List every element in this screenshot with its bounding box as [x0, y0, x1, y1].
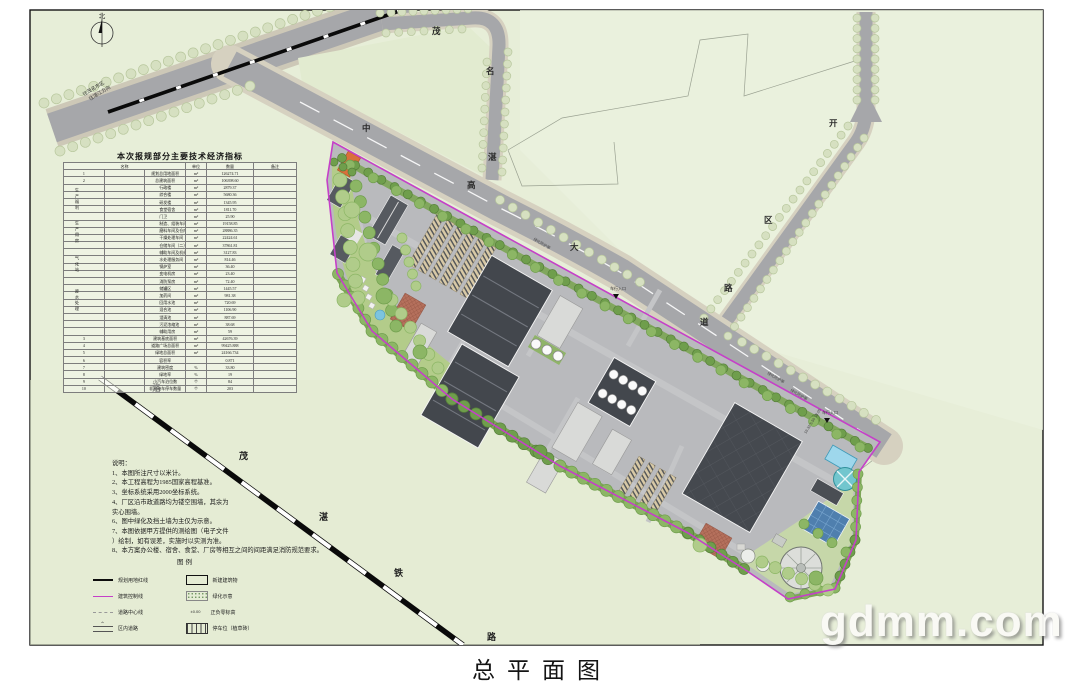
row-number: 1	[64, 170, 105, 177]
row-name: 建筑密度	[145, 364, 186, 371]
group-label: 气化站	[74, 256, 80, 273]
legend-item: ±0.00 正负零标高	[186, 604, 279, 620]
table-row: 变电机房 m² 23.40	[64, 270, 297, 277]
row-group-cell	[104, 234, 145, 241]
row-group-cell	[104, 292, 145, 299]
note-line: 6、图中绿化及挡土墙为主仅为示意。	[112, 517, 342, 527]
row-unit: m²	[186, 206, 207, 213]
row-name: 锅炉室	[145, 263, 186, 270]
row-group-cell	[104, 313, 145, 320]
row-name: 制造、组装车间、机械储存总库房	[145, 220, 186, 227]
row-remark	[254, 198, 297, 205]
table-row: 储罐区 m² 1445.57	[64, 285, 297, 292]
row-number	[64, 278, 105, 285]
row-unit: m²	[186, 306, 207, 313]
table-row: 辅助用房 m² 59	[64, 328, 297, 335]
row-group-cell	[104, 242, 145, 249]
row-number	[64, 220, 105, 227]
row-name: 回用水池	[145, 299, 186, 306]
table-row: 3 建筑基底面积 m² 42676.39	[64, 335, 297, 342]
row-unit: m²	[186, 198, 207, 205]
row-number	[64, 213, 105, 220]
row-unit: m²	[186, 278, 207, 285]
vehicle-entrance-label: 车行入口	[610, 285, 626, 291]
row-group-cell	[104, 299, 145, 306]
row-quantity: 2879.37	[207, 184, 254, 191]
row-group-cell	[104, 249, 145, 256]
row-number	[64, 328, 105, 335]
row-remark	[254, 321, 297, 328]
table-row: 1 规划总用地面积 m² 126274.71	[64, 170, 297, 177]
group-label: 废水处理	[74, 289, 80, 312]
row-unit: m²	[186, 170, 207, 177]
row-remark	[254, 349, 297, 356]
legend-item: 道路中心线	[93, 604, 186, 620]
col-header-remark: 备注	[254, 163, 297, 170]
row-remark	[254, 184, 297, 191]
table-row: 2 总建筑面积 m² 106398.60	[64, 177, 297, 184]
row-unit: m²	[186, 234, 207, 241]
row-group-cell	[104, 191, 145, 198]
row-name: 干燥处理车间	[145, 234, 186, 241]
row-name: 综合楼	[145, 191, 186, 198]
row-name: 总建筑面积	[145, 177, 186, 184]
row-name: 辅助车间及机修用房	[145, 249, 186, 256]
row-group-cell	[104, 198, 145, 205]
legend-item: 停车位（植草砖）	[186, 620, 279, 636]
row-remark	[254, 270, 297, 277]
row-name: 规划总用地面积	[145, 170, 186, 177]
notes-block: 说明：1、本图所注尺寸以米计。2、本工程高程为1985国家高程基准。3、坐标系统…	[112, 459, 342, 556]
row-group-cell	[104, 328, 145, 335]
row-name: 变电机房	[145, 270, 186, 277]
row-quantity: 23.40	[207, 270, 254, 277]
row-unit: m²	[186, 213, 207, 220]
row-unit: m²	[186, 328, 207, 335]
row-unit: %	[186, 364, 207, 371]
row-remark	[254, 385, 297, 392]
table-row: 门卫 m² 25.90	[64, 213, 297, 220]
row-number	[64, 184, 105, 191]
legend-label: 正负零标高	[211, 609, 236, 616]
table-row: 研发楼 m² 1345.95	[64, 198, 297, 205]
row-name: 食堂宿舍	[145, 206, 186, 213]
row-unit: m²	[186, 270, 207, 277]
row-group-cell	[104, 342, 145, 349]
row-remark	[254, 177, 297, 184]
note-line: 2、本工程高程为1985国家高程基准。	[112, 478, 342, 488]
table-row: 制造、组装车间、机械储存总库房 m² 19158.85	[64, 220, 297, 227]
row-remark	[254, 306, 297, 313]
row-quantity: 72.40	[207, 278, 254, 285]
row-unit	[186, 357, 207, 364]
road-char: 区	[764, 215, 773, 225]
row-remark	[254, 313, 297, 320]
watermark: gdmm.com	[820, 597, 1063, 647]
table-row: 10 非机动车停车数量 个 203	[64, 385, 297, 392]
row-unit: m²	[186, 191, 207, 198]
row-name: 磨料车间及仓库B（一）	[145, 227, 186, 234]
row-group-cell	[104, 349, 145, 356]
row-number	[64, 306, 105, 313]
row-remark	[254, 342, 297, 349]
row-quantity: 0.871	[207, 357, 254, 364]
row-number	[64, 313, 105, 320]
row-remark	[254, 299, 297, 306]
sheet-title: 总平面图	[0, 651, 1084, 685]
redline-icon	[93, 575, 113, 585]
road-char: 路	[724, 283, 733, 293]
table-row: 9 小汽车泊位数 个 84	[64, 378, 297, 385]
row-quantity: 33.80	[207, 364, 254, 371]
row-name: 辅助用房	[145, 328, 186, 335]
garden-pond	[375, 310, 385, 320]
legend-label: 道路中心线	[118, 609, 143, 616]
row-group-cell	[104, 170, 145, 177]
row-group-cell	[104, 321, 145, 328]
row-quantity: 84	[207, 378, 254, 385]
row-name: 建筑基底面积	[145, 335, 186, 342]
legend-item: 区内道路	[93, 620, 186, 636]
row-number: 5	[64, 349, 105, 356]
row-unit: m²	[186, 184, 207, 191]
road-char: 开	[829, 118, 838, 128]
row-name: 澄清池	[145, 313, 186, 320]
row-group-cell	[104, 227, 145, 234]
row-name: 门卫	[145, 213, 186, 220]
row-remark	[254, 335, 297, 342]
road-char: 大	[570, 242, 579, 252]
row-number	[64, 191, 105, 198]
row-quantity: 106398.60	[207, 177, 254, 184]
legend-item: 规划用地红线	[93, 572, 186, 588]
row-remark	[254, 285, 297, 292]
row-unit: m²	[186, 285, 207, 292]
table-row: 污泥浓缩池 m² 38.68	[64, 321, 297, 328]
row-quantity: 3127.83	[207, 249, 254, 256]
row-number	[64, 292, 105, 299]
row-group-cell	[104, 371, 145, 378]
table-row: 行政楼 m² 2879.37	[64, 184, 297, 191]
row-group-cell	[104, 206, 145, 213]
row-number	[64, 256, 105, 263]
row-remark	[254, 191, 297, 198]
legend-item: 建筑控制线	[93, 588, 186, 604]
row-quantity: 1106.90	[207, 306, 254, 313]
row-quantity: 28886.35	[207, 227, 254, 234]
table-row: 综合楼 m² 5680.36	[64, 191, 297, 198]
row-unit: m²	[186, 220, 207, 227]
row-unit: m²	[186, 292, 207, 299]
table-row: 5 绿地总面积 m² 24166.734	[64, 349, 297, 356]
row-quantity: 5680.36	[207, 191, 254, 198]
legend-label: 新建建筑物	[213, 577, 238, 584]
table-row: 7 建筑密度 % 33.80	[64, 364, 297, 371]
row-group-cell	[104, 184, 145, 191]
row-number	[64, 206, 105, 213]
row-unit: m²	[186, 342, 207, 349]
row-number	[64, 249, 105, 256]
row-remark	[254, 213, 297, 220]
row-number	[64, 321, 105, 328]
row-group-cell	[104, 263, 145, 270]
table-row: 回用水池 m² 720.69	[64, 299, 297, 306]
railway-char: 铁	[394, 567, 403, 578]
north-label: 北	[99, 12, 106, 20]
row-unit: m²	[186, 177, 207, 184]
row-remark	[254, 170, 297, 177]
row-group-cell	[104, 385, 145, 392]
row-number	[64, 234, 105, 241]
digester-tank	[741, 549, 755, 563]
row-group-cell	[104, 220, 145, 227]
level-mark-icon: ±0.00	[186, 607, 206, 617]
centerline-icon	[93, 607, 113, 617]
row-quantity: 203	[207, 385, 254, 392]
note-line: 3、坐标系统采用2000坐标系统。	[112, 488, 342, 498]
greening-icon	[186, 591, 208, 601]
row-group-cell	[104, 306, 145, 313]
row-number	[64, 242, 105, 249]
road-char: 茂	[431, 26, 441, 36]
row-unit: m²	[186, 256, 207, 263]
row-name: 非机动车停车数量	[145, 385, 186, 392]
row-unit: m²	[186, 335, 207, 342]
row-number: 9	[64, 378, 105, 385]
table-row: 消防泵房 m² 72.40	[64, 278, 297, 285]
row-number: 7	[64, 364, 105, 371]
legend-label: 区内道路	[118, 625, 138, 632]
row-quantity: 1445.57	[207, 285, 254, 292]
col-header-qty: 数量	[207, 163, 254, 170]
row-group-cell	[104, 378, 145, 385]
table-row: 磨料车间及仓库B（一） m² 28886.35	[64, 227, 297, 234]
row-name: 绿地总面积	[145, 349, 186, 356]
legend-label: 绿化示意	[213, 593, 233, 600]
row-unit: m²	[186, 313, 207, 320]
note-line: 1、本图所注尺寸以米计。	[112, 469, 342, 479]
row-remark	[254, 364, 297, 371]
note-line: 说明：	[112, 459, 342, 469]
group-label: 生产福利	[74, 188, 80, 211]
row-unit: 个	[186, 378, 207, 385]
row-number	[64, 285, 105, 292]
row-number	[64, 263, 105, 270]
row-unit: m²	[186, 321, 207, 328]
row-unit: m²	[186, 249, 207, 256]
row-unit: 个	[186, 385, 207, 392]
row-quantity: 37861.81	[207, 242, 254, 249]
row-name: 加药间	[145, 292, 186, 299]
row-group-cell	[104, 357, 145, 364]
table-row: 混合池 m² 1106.90	[64, 306, 297, 313]
table-row: 加药间 m² 981.38	[64, 292, 297, 299]
table-row: 水处理服务间 m² 814.46	[64, 256, 297, 263]
row-remark	[254, 328, 297, 335]
table-row: 8 绿地率 % 19	[64, 371, 297, 378]
table-row: 食堂宿舍 m² 1811.70	[64, 206, 297, 213]
row-number	[64, 227, 105, 234]
row-number	[64, 270, 105, 277]
new-building-icon	[186, 575, 208, 585]
note-line: 实心围墙。	[112, 508, 342, 518]
table-row: 澄清池 m² 887.69	[64, 313, 297, 320]
row-quantity: 59	[207, 328, 254, 335]
row-name: 仓储车间（二）	[145, 242, 186, 249]
row-remark	[254, 234, 297, 241]
legend-item: 新建建筑物	[186, 572, 279, 588]
row-remark	[254, 263, 297, 270]
row-group-cell	[104, 213, 145, 220]
note-line: 8、本方案办公楼、宿舍、食堂、厂房等相互之间的间距满足消防规范要求。	[112, 546, 342, 556]
row-quantity: 814.46	[207, 256, 254, 263]
road-char: 高	[467, 180, 476, 190]
row-remark	[254, 357, 297, 364]
table-row: 辅助车间及机修用房 m² 3127.83	[64, 249, 297, 256]
inner-road-icon	[93, 623, 113, 633]
table-header-row: 名称 单位 数量 备注	[64, 163, 297, 170]
row-quantity: 24166.734	[207, 349, 254, 356]
row-name: 绿地率	[145, 371, 186, 378]
table-row: 干燥处理车间 m² 22424.61	[64, 234, 297, 241]
row-number: 10	[64, 385, 105, 392]
row-number	[64, 299, 105, 306]
row-unit: m²	[186, 263, 207, 270]
indicator-table: 本次报规部分主要技术经济指标 名称 单位 数量 备注 1 规划总用地面积 m² …	[63, 152, 297, 393]
col-header-unit: 单位	[186, 163, 207, 170]
magenta-line-icon	[93, 591, 113, 601]
row-name: 小汽车泊位数	[145, 378, 186, 385]
legend-label: 规划用地红线	[118, 577, 148, 584]
row-quantity: 36.40	[207, 263, 254, 270]
table-row: 4 道路广场总面积 m² 99425.888	[64, 342, 297, 349]
col-header-name: 名称	[64, 163, 186, 170]
table-title: 本次报规部分主要技术经济指标	[63, 152, 297, 162]
row-name: 容积率	[145, 357, 186, 364]
note-line: 4、厂区沿市政道路均为镂空围墙，其余为	[112, 498, 342, 508]
row-group-cell	[104, 270, 145, 277]
road-char: 中	[362, 123, 371, 133]
row-remark	[254, 292, 297, 299]
row-group-cell	[104, 335, 145, 342]
table-row: 锅炉室 m² 36.40	[64, 263, 297, 270]
row-name: 研发楼	[145, 198, 186, 205]
row-number: 8	[64, 371, 105, 378]
note-line: ）绘制，如有误差，实施时以实测为准。	[112, 537, 342, 547]
row-quantity: 99425.888	[207, 342, 254, 349]
row-remark	[254, 206, 297, 213]
row-group-cell	[104, 285, 145, 292]
vehicle-entrance-label: 车行入口	[822, 409, 838, 415]
row-number: 4	[64, 342, 105, 349]
row-remark	[254, 278, 297, 285]
row-quantity: 1811.70	[207, 206, 254, 213]
row-remark	[254, 249, 297, 256]
railway-char: 路	[487, 631, 497, 642]
table-row: 仓储车间（二） m² 37861.81	[64, 242, 297, 249]
row-unit: m²	[186, 242, 207, 249]
row-quantity: 38.68	[207, 321, 254, 328]
road-char: 名	[486, 66, 495, 76]
note-line: 7、本图依据甲方提供的测绘图（电子文件	[112, 527, 342, 537]
row-remark	[254, 227, 297, 234]
row-group-cell	[104, 278, 145, 285]
row-quantity: 887.69	[207, 313, 254, 320]
row-quantity: 1345.95	[207, 198, 254, 205]
row-unit: %	[186, 371, 207, 378]
row-unit: m²	[186, 349, 207, 356]
row-name: 混合池	[145, 306, 186, 313]
row-quantity: 19158.85	[207, 220, 254, 227]
drawing-sheet: 北 中 高 大 道 茂 名 湛 开 区 路 洛 茂 湛 铁 路 往茂名	[0, 0, 1084, 693]
parking-icon	[186, 623, 208, 634]
road-char: 湛	[488, 152, 497, 162]
row-quantity: 42676.39	[207, 335, 254, 342]
row-remark	[254, 242, 297, 249]
row-quantity: 19	[207, 371, 254, 378]
group-label: 生产用房	[74, 221, 80, 244]
row-remark	[254, 220, 297, 227]
row-group-cell	[104, 177, 145, 184]
row-remark	[254, 378, 297, 385]
row-remark	[254, 371, 297, 378]
row-name: 消防泵房	[145, 278, 186, 285]
row-quantity: 720.69	[207, 299, 254, 306]
row-number: 3	[64, 335, 105, 342]
row-quantity: 126274.71	[207, 170, 254, 177]
legend: 图例 规划用地红线 建筑控制线 道路中心线	[93, 556, 278, 636]
row-group-cell	[104, 364, 145, 371]
row-unit: m²	[186, 227, 207, 234]
row-quantity: 981.38	[207, 292, 254, 299]
legend-item: 绿化示意	[186, 588, 279, 604]
legend-label: 停车位（植草砖）	[213, 625, 253, 632]
row-quantity: 25.90	[207, 213, 254, 220]
row-name: 水处理服务间	[145, 256, 186, 263]
row-name: 污泥浓缩池	[145, 321, 186, 328]
row-quantity: 22424.61	[207, 234, 254, 241]
row-remark	[254, 256, 297, 263]
road-char: 道	[700, 317, 709, 327]
row-number	[64, 198, 105, 205]
row-name: 行政楼	[145, 184, 186, 191]
row-number: 6	[64, 357, 105, 364]
legend-title: 图例	[93, 556, 278, 566]
row-name: 道路广场总面积	[145, 342, 186, 349]
legend-label: 建筑控制线	[118, 593, 143, 600]
row-number: 2	[64, 177, 105, 184]
row-name: 储罐区	[145, 285, 186, 292]
row-unit: m²	[186, 299, 207, 306]
row-group-cell	[104, 256, 145, 263]
table-row: 6 容积率 0.871	[64, 357, 297, 364]
